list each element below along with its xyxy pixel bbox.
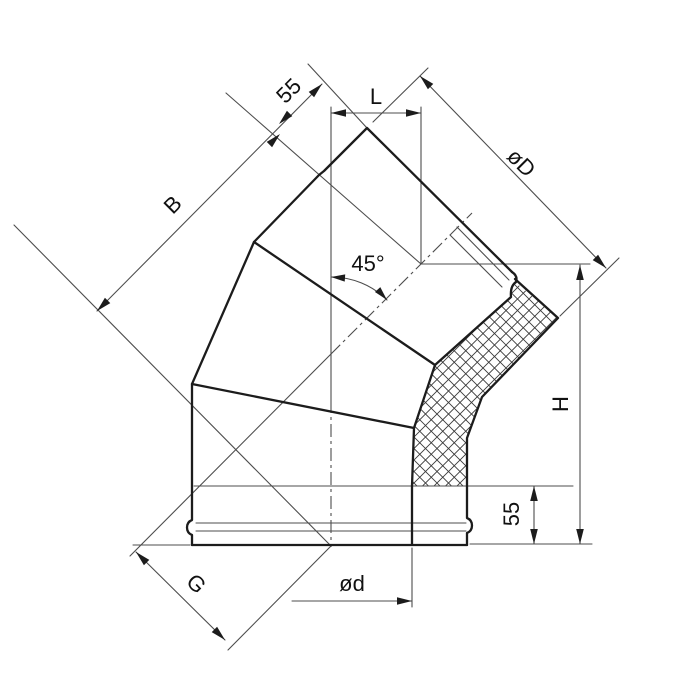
arrow-phid-right [397, 597, 412, 605]
dim-line-G [136, 552, 225, 640]
arrow-H-bottom [576, 529, 584, 544]
arrow-B-upper [267, 131, 283, 147]
arrow-arc-left [331, 273, 345, 281]
arrow-55right-top [530, 486, 538, 501]
arrow-L-left [331, 109, 346, 117]
label-G: G [181, 569, 211, 599]
arrow-L-right [406, 109, 421, 117]
technical-drawing-page: 55 L øD B 45° H 55 G ød [0, 0, 700, 700]
label-phiD: øD [502, 143, 540, 181]
elbow-45-drawing: 55 L øD B 45° H 55 G ød [0, 0, 700, 700]
label-55-top: 55 [271, 73, 306, 108]
angle-arc [331, 277, 387, 300]
seam-lower [192, 384, 414, 428]
dim-line-phiD [420, 76, 606, 268]
g-extension-lower [228, 546, 331, 650]
b-extension-upper [226, 93, 421, 264]
label-B: B [159, 191, 187, 219]
arrow-H-top [576, 265, 584, 280]
top-bead-line-2 [457, 227, 509, 280]
seam-upper [254, 242, 435, 365]
face-plane-extension [308, 64, 367, 128]
phiD-extension-lower [560, 258, 619, 316]
axis-dashdot-upper [331, 213, 472, 354]
axis-extension-lower [130, 354, 331, 556]
label-L: L [370, 84, 382, 109]
arrow-55top-lower [276, 111, 292, 127]
b-extension-long [14, 225, 331, 546]
arrow-55right-bottom [530, 529, 538, 544]
label-H: H [548, 396, 573, 412]
label-45deg: 45° [351, 251, 384, 276]
top-bead-line-1 [450, 235, 502, 287]
insulation-hatch [412, 281, 558, 486]
label-55-right: 55 [499, 502, 524, 526]
label-phid: ød [339, 571, 365, 596]
